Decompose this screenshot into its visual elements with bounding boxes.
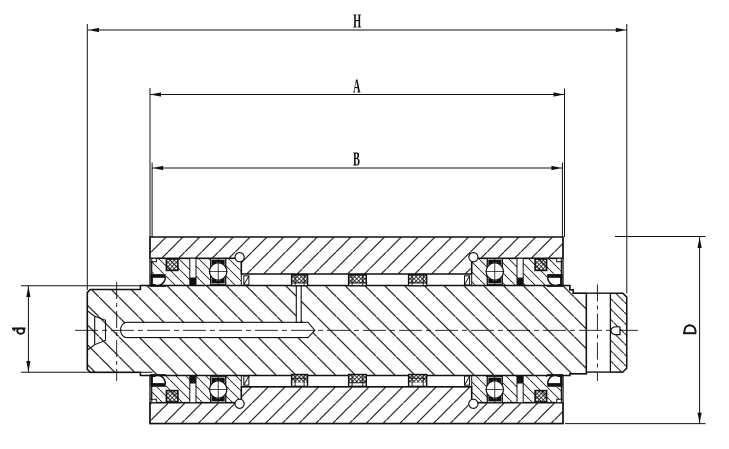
- svg-text:B: B: [353, 149, 360, 170]
- svg-text:A: A: [353, 76, 361, 97]
- svg-text:H: H: [353, 11, 361, 32]
